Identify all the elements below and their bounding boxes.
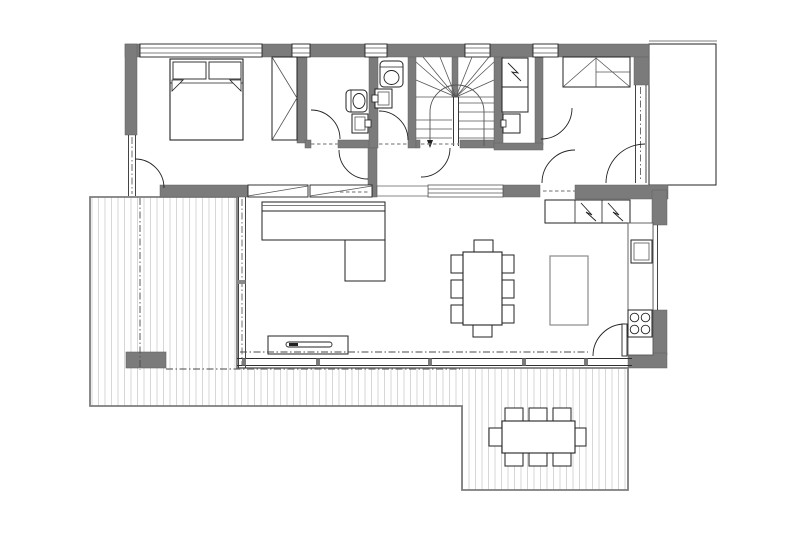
kitchen-tall-units (545, 200, 630, 223)
cooktop (628, 310, 652, 337)
window-stair-north (465, 44, 490, 57)
deck-wall-block (126, 352, 166, 368)
garage-pad (649, 44, 716, 185)
entry-closet (563, 57, 630, 87)
window-utility-north (533, 44, 558, 57)
washbasin-bath-b (372, 89, 392, 108)
bedroom-closet (272, 57, 297, 140)
floor-plan (0, 0, 800, 534)
washbasin-bath-a (352, 114, 371, 133)
kitchen-sink (631, 240, 652, 263)
dryer-unit (502, 87, 528, 112)
boiler-unit (501, 114, 520, 133)
floor-plan-svg (0, 0, 800, 534)
dining-set (451, 240, 514, 337)
glass-strip-hall (428, 185, 503, 197)
washing-machine (502, 58, 528, 87)
bed (170, 59, 243, 140)
toilet-bath-b (380, 61, 403, 87)
window-bedroom-north (140, 44, 262, 57)
tv-sideboard (268, 336, 348, 354)
kitchen-island (550, 256, 588, 325)
window-bathroom-north (365, 44, 387, 57)
hall-sideboard (248, 185, 372, 197)
window-north-2 (292, 44, 310, 57)
passage-threshold (377, 186, 428, 196)
toilet-bath-a (346, 90, 367, 112)
